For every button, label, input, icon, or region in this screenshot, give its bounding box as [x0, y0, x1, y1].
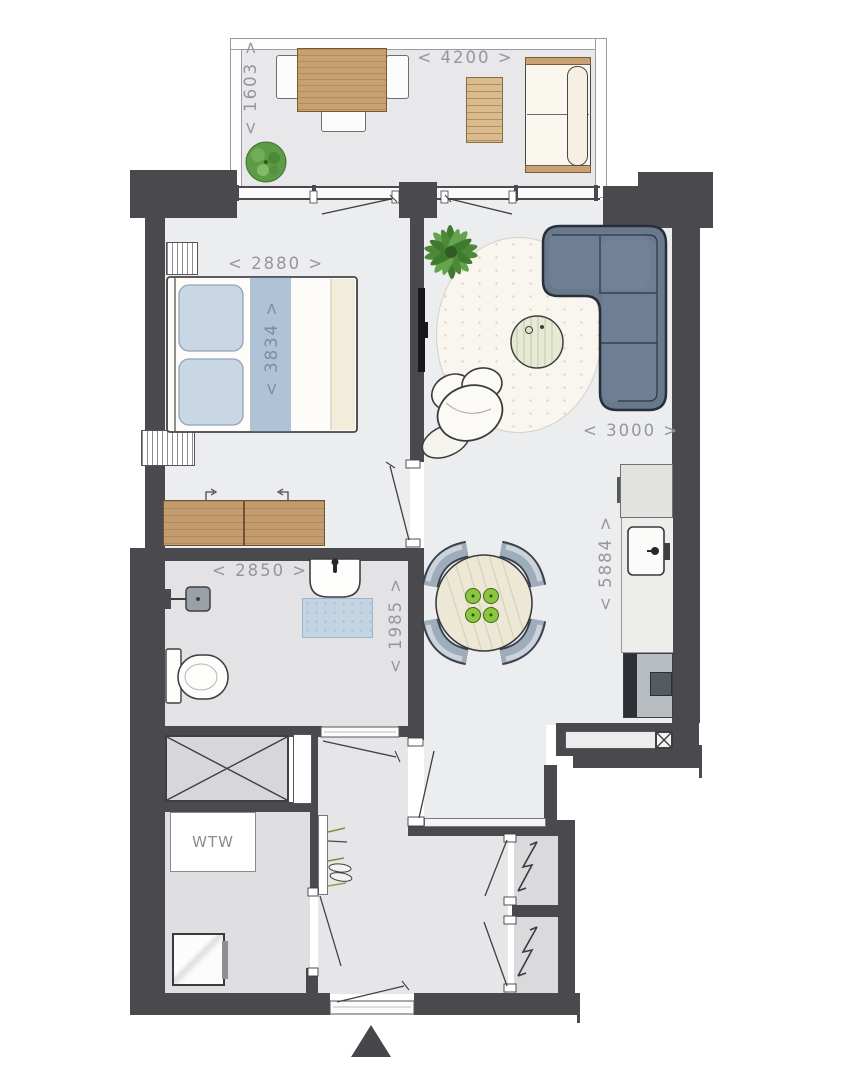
wall-storage-bottom — [130, 802, 318, 812]
wall-end-flange-bottom — [577, 993, 580, 1023]
storage-door — [293, 734, 312, 804]
balcony-slat-mat — [466, 77, 503, 143]
dimension-bathroom-width: < 2850 > — [212, 561, 294, 581]
bath-mat — [302, 598, 373, 638]
radiator — [141, 430, 195, 466]
ventilation-shaft-box — [655, 731, 673, 749]
wall-bathroom-top — [130, 548, 424, 561]
hallway-floor-east — [408, 836, 508, 994]
kitchen-tall-cabinet — [620, 464, 673, 518]
dimension-balcony-width: < 4200 > — [408, 48, 523, 68]
north-arrow-icon — [351, 1025, 391, 1057]
balcony-lounge-backrest — [567, 66, 588, 166]
dimension-living-width: < 3000 > — [583, 421, 659, 441]
facade-mullion — [594, 185, 598, 201]
bathroom-floor — [165, 560, 408, 728]
balcony-chair — [276, 55, 299, 99]
living-room-rug — [436, 237, 602, 433]
balcony-railing-right — [595, 38, 607, 198]
kitchen-oven-front — [624, 654, 637, 717]
balcony-table — [297, 48, 387, 112]
wall-bedroom-living — [410, 218, 424, 462]
coat-rack — [318, 815, 328, 895]
wall-top-left — [130, 170, 237, 218]
wall-utility-right-upper — [310, 812, 318, 890]
storage-shaft — [165, 735, 289, 802]
dimension-balcony-depth: < 1603 > — [241, 51, 261, 135]
kitchen-vent-grille — [565, 731, 657, 749]
wall-top-right-step — [638, 172, 713, 186]
hallway-floor — [318, 737, 408, 994]
wall-left-upper — [145, 218, 165, 548]
wall-kitchen-step — [573, 756, 699, 768]
wall-bedroom-living-pillar — [399, 182, 437, 218]
wall-left-lower — [130, 548, 165, 1015]
balcony-chair — [321, 109, 366, 132]
wall-storage-right — [312, 726, 318, 812]
wall-closet-separator — [512, 905, 558, 917]
dimension-bathroom-depth: < 1985 > — [386, 589, 406, 673]
balcony-lounge-cap-bottom — [525, 165, 591, 173]
sideboard-divider — [243, 500, 245, 546]
dimension-living-depth: < 5884 > — [596, 527, 616, 611]
facade-mullion — [514, 185, 518, 201]
floorplan: WTW — [0, 0, 845, 1092]
wall-bottom-east — [414, 993, 577, 1015]
balcony-chair — [386, 55, 409, 99]
wall-utility-pillar — [306, 968, 318, 995]
dimension-bedroom-width: < 2880 > — [228, 254, 308, 274]
radiator — [166, 242, 198, 275]
wall-bottom-west — [130, 993, 330, 1015]
kitchen-counter — [621, 518, 673, 653]
wall-closet-right — [558, 820, 575, 1015]
wall-right — [672, 228, 700, 723]
wall-top-right — [603, 186, 713, 228]
electrical-closet-1-floor — [514, 836, 558, 905]
wall-bathroom-right — [408, 548, 424, 740]
facade-mullion — [312, 185, 316, 201]
living-convector-grille — [424, 818, 546, 827]
dimension-bedroom-depth: < 3834 > — [262, 312, 282, 396]
washing-machine — [172, 933, 225, 986]
electrical-closet-2-floor — [514, 917, 558, 993]
balcony-lounge-cap-top — [525, 57, 591, 65]
wtw-label: WTW — [192, 833, 234, 851]
wtw-ventilation-unit: WTW — [170, 812, 256, 872]
washing-machine-door-hinge — [222, 941, 228, 979]
bedroom-floor — [165, 198, 410, 548]
wall-end-flange-kitchen — [699, 745, 702, 778]
kitchen-oven-handle — [650, 672, 672, 696]
